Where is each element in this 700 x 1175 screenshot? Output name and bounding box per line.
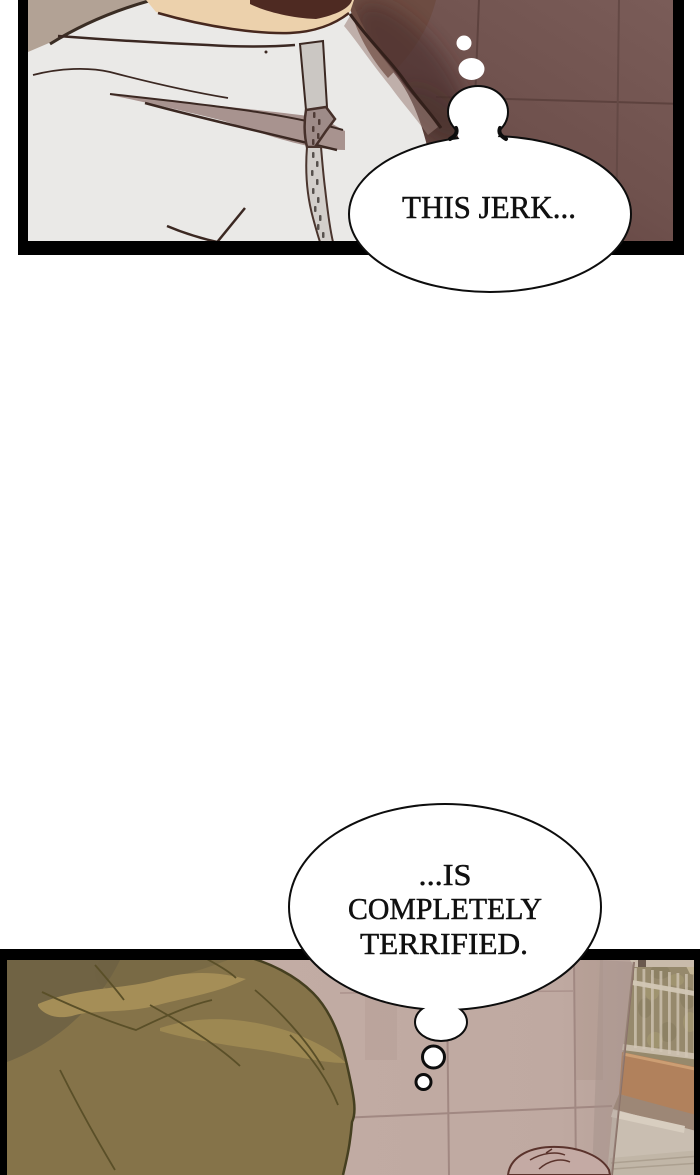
svg-text:...IS: ...IS	[419, 857, 472, 892]
svg-text:THIS JERK...: THIS JERK...	[402, 189, 576, 225]
svg-text:COMPLETELY: COMPLETELY	[348, 891, 542, 926]
svg-text:TERRIFIED.: TERRIFIED.	[360, 926, 528, 961]
